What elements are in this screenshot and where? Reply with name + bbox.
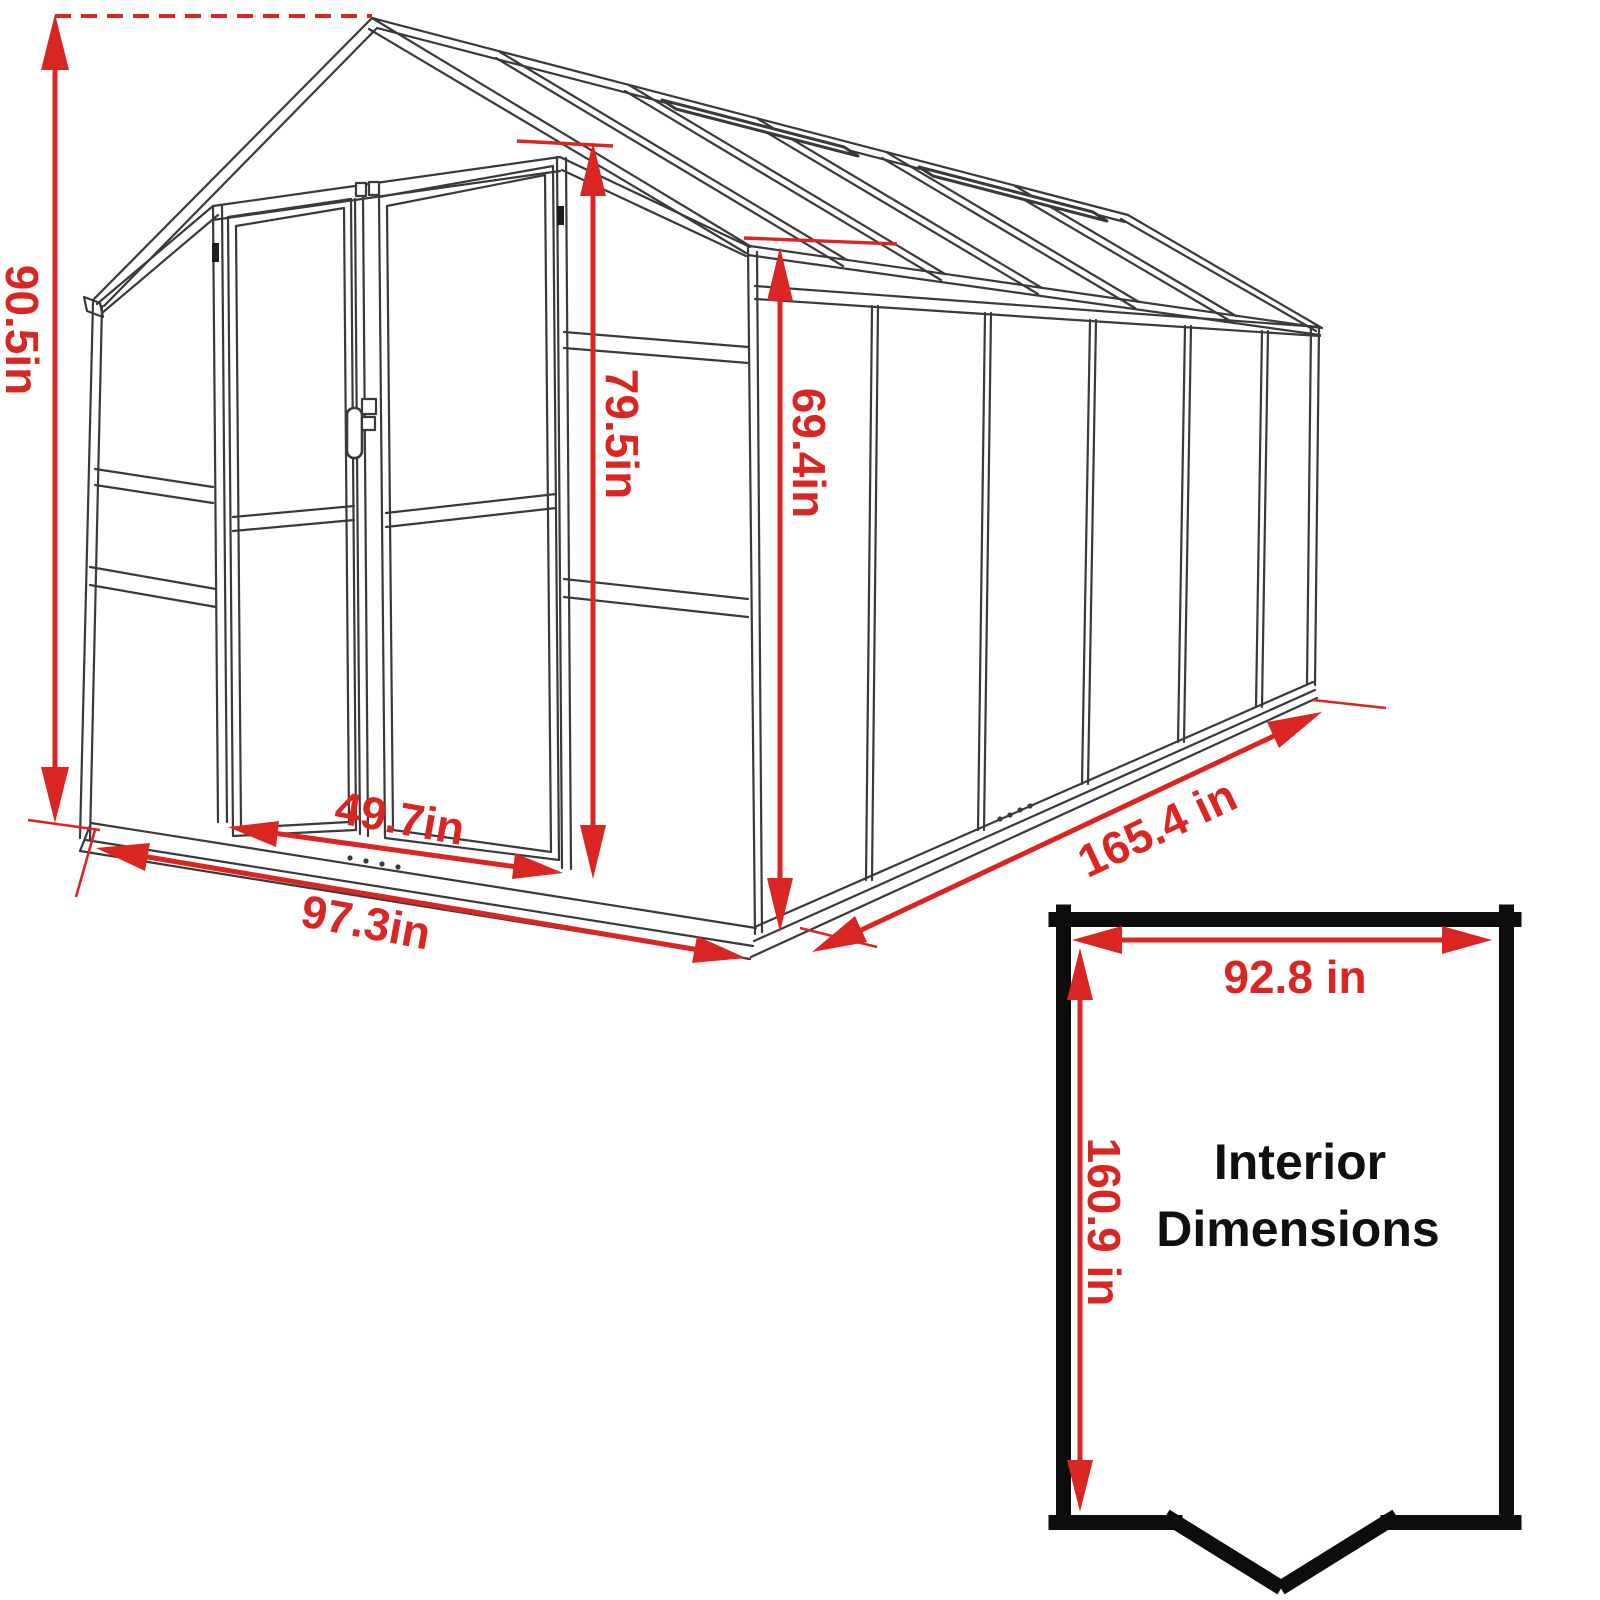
interior-depth-label: 160.9 in [1078, 1138, 1130, 1307]
front-width-label: 97.3in [297, 885, 435, 960]
door-top-roller-block-left [356, 183, 366, 196]
door-handle [347, 408, 362, 458]
door-latch-lower [362, 417, 375, 430]
door-height-label: 79.5in [596, 369, 648, 499]
roof-rafter-lines [496, 52, 1236, 322]
greenhouse-dimension-diagram: 90.5in 79.5in 69.4in 49.7in 97.3in 165.4… [0, 0, 1600, 1600]
side-wall-height-label: 69.4in [783, 388, 835, 518]
roof-vent-window-2 [919, 167, 1107, 221]
door-hinge-left [212, 243, 219, 262]
double-door-panels [228, 166, 559, 860]
side-wall-frame-lines [751, 286, 1320, 957]
interior-title-line1: Interior [1214, 1134, 1386, 1190]
door-hinge-right [557, 206, 564, 225]
door-latch-upper [362, 399, 376, 414]
door-top-roller-block-right [369, 182, 379, 195]
dimension-annotations: 90.5in 79.5in 69.4in 49.7in 97.3in 165.4… [0, 14, 1386, 963]
roof-vent-window-1 [662, 100, 858, 156]
interior-dimensions-box: 92.8 in 160.9 in Interior Dimensions [1056, 912, 1514, 1584]
diagram-canvas: 90.5in 79.5in 69.4in 49.7in 97.3in 165.4… [0, 0, 1600, 1600]
interior-title-line2: Dimensions [1156, 1201, 1439, 1257]
overall-height-label: 90.5in [0, 265, 48, 395]
interior-width-label: 92.8 in [1223, 951, 1366, 1003]
side-length-label: 165.4 in [1070, 769, 1245, 888]
